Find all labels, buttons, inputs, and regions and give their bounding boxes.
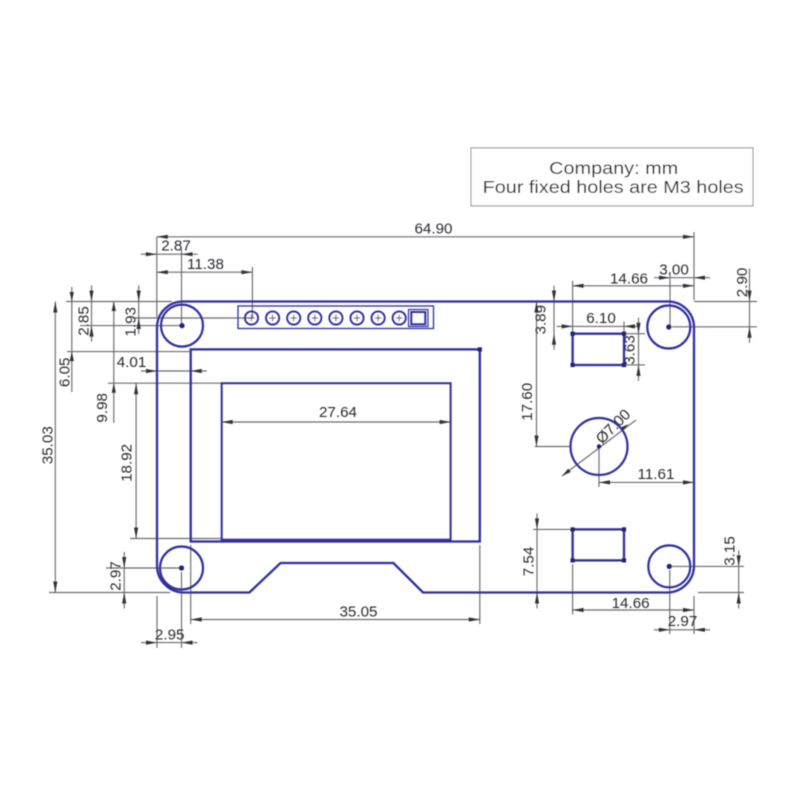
svg-text:3.15: 3.15 bbox=[722, 536, 739, 566]
svg-text:1.93: 1.93 bbox=[123, 307, 140, 337]
svg-text:35.05: 35.05 bbox=[339, 604, 377, 621]
svg-text:6.05: 6.05 bbox=[57, 358, 74, 388]
svg-text:2.90: 2.90 bbox=[734, 268, 751, 298]
svg-text:2.97: 2.97 bbox=[108, 561, 125, 591]
svg-text:4.01: 4.01 bbox=[117, 354, 147, 371]
svg-text:18.92: 18.92 bbox=[118, 444, 135, 482]
svg-text:17.60: 17.60 bbox=[519, 383, 536, 421]
svg-text:14.66: 14.66 bbox=[610, 271, 648, 288]
svg-text:2.85: 2.85 bbox=[76, 306, 93, 336]
svg-text:3.89: 3.89 bbox=[533, 305, 550, 335]
svg-text:2.87: 2.87 bbox=[161, 238, 191, 255]
svg-text:9.98: 9.98 bbox=[94, 393, 111, 423]
svg-text:35.03: 35.03 bbox=[39, 426, 56, 464]
svg-text:27.64: 27.64 bbox=[319, 404, 357, 421]
svg-text:2.95: 2.95 bbox=[155, 626, 185, 643]
svg-text:14.66: 14.66 bbox=[612, 595, 650, 612]
svg-text:11.38: 11.38 bbox=[187, 256, 224, 273]
svg-text:11.61: 11.61 bbox=[638, 466, 675, 483]
svg-text:Company: mm: Company: mm bbox=[549, 158, 678, 178]
svg-text:7.54: 7.54 bbox=[520, 547, 537, 577]
svg-text:2.97: 2.97 bbox=[668, 613, 698, 630]
svg-text:Four fixed holes are M3 holes: Four fixed holes are M3 holes bbox=[483, 177, 744, 197]
svg-text:64.90: 64.90 bbox=[414, 221, 452, 238]
svg-text:3.00: 3.00 bbox=[659, 261, 689, 278]
svg-text:6.10: 6.10 bbox=[586, 310, 616, 327]
